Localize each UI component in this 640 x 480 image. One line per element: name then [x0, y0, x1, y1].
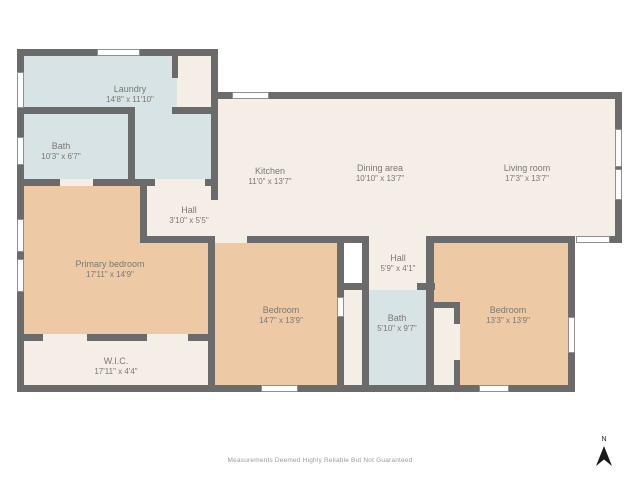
wall-alcove-west — [172, 49, 178, 78]
room-label-bedroom-right: Bedroom 13'3" x 13'9" — [448, 305, 568, 326]
door-opening — [43, 334, 87, 341]
door-opening — [60, 179, 93, 186]
room-label-hall-lower: Hall 5'9" x 4'1" — [338, 253, 458, 274]
window-laundry-left — [17, 72, 24, 108]
window-living-1 — [615, 129, 622, 167]
room-bath-lower — [367, 288, 427, 387]
room-label-wic: W.I.C. 17'11" x 4'4" — [56, 356, 176, 377]
door-opening — [369, 283, 417, 290]
wall-alcove-south — [172, 107, 213, 114]
floor-plan: Laundry 14'8" x 11'10" Bath 10'3" x 6'7"… — [0, 0, 640, 480]
room-label-bath-lower: Bath 5'10" x 9'7" — [337, 313, 457, 334]
window-laundry-top — [97, 49, 140, 56]
window-kitchen — [232, 92, 269, 99]
north-label: N — [592, 436, 616, 444]
room-label-bath-upper: Bath 10'3" x 6'7" — [1, 141, 121, 162]
window-living-2 — [615, 169, 622, 200]
room-closet-middle — [344, 288, 363, 387]
wall-hall-upper-south — [140, 236, 215, 243]
window-bedroom-right-south — [479, 385, 509, 392]
room-label-laundry: Laundry 14'8" x 11'10" — [70, 84, 190, 105]
door-opening — [369, 236, 426, 243]
wall-wic-north-segment — [87, 334, 147, 341]
patio-door — [576, 236, 610, 243]
wall-right — [615, 92, 622, 243]
wall-bedroom-right-east — [568, 236, 575, 392]
north-arrow-icon: N — [592, 436, 616, 474]
wall-wic-north-segment — [24, 334, 43, 341]
room-label-hall-upper: Hall 3'10" x 5'5" — [129, 205, 249, 226]
door-opening — [215, 236, 247, 243]
window-bedroom-right — [568, 317, 575, 353]
room-label-bedroom-middle: Bedroom 14'7" x 13'9" — [221, 305, 341, 326]
wall-segment — [17, 179, 60, 186]
disclaimer-text: Measurements Deemed Highly Reliable But … — [0, 457, 640, 464]
room-label-primary-bedroom: Primary bedroom 17'11" x 14'9" — [50, 259, 170, 280]
wall-living-south-corner — [610, 236, 622, 243]
door-opening — [155, 179, 205, 186]
door-opening — [147, 334, 188, 341]
wall-bath-upper-east — [128, 107, 135, 186]
wall-living-south — [429, 236, 575, 243]
wall-bedroom-middle-north — [247, 236, 368, 243]
wall-primary-east — [208, 236, 215, 392]
wall-top-main — [211, 92, 622, 99]
wall-closet-right-east-lower — [454, 360, 460, 385]
wall-bath-upper-north — [17, 107, 135, 114]
room-label-living: Living room 17'3" x 13'7" — [467, 163, 587, 184]
window-primary-2 — [17, 259, 24, 292]
room-label-dining: Dining area 10'10" x 13'7" — [320, 163, 440, 184]
north-arrow-glyph — [592, 444, 616, 468]
room-label-kitchen: Kitchen 11'0" x 13'7" — [210, 166, 330, 187]
wall-closet-middle-north — [344, 283, 362, 290]
window-bedroom-middle — [261, 385, 298, 392]
wall-wic-north-segment — [188, 334, 213, 341]
window-primary-1 — [17, 219, 24, 252]
